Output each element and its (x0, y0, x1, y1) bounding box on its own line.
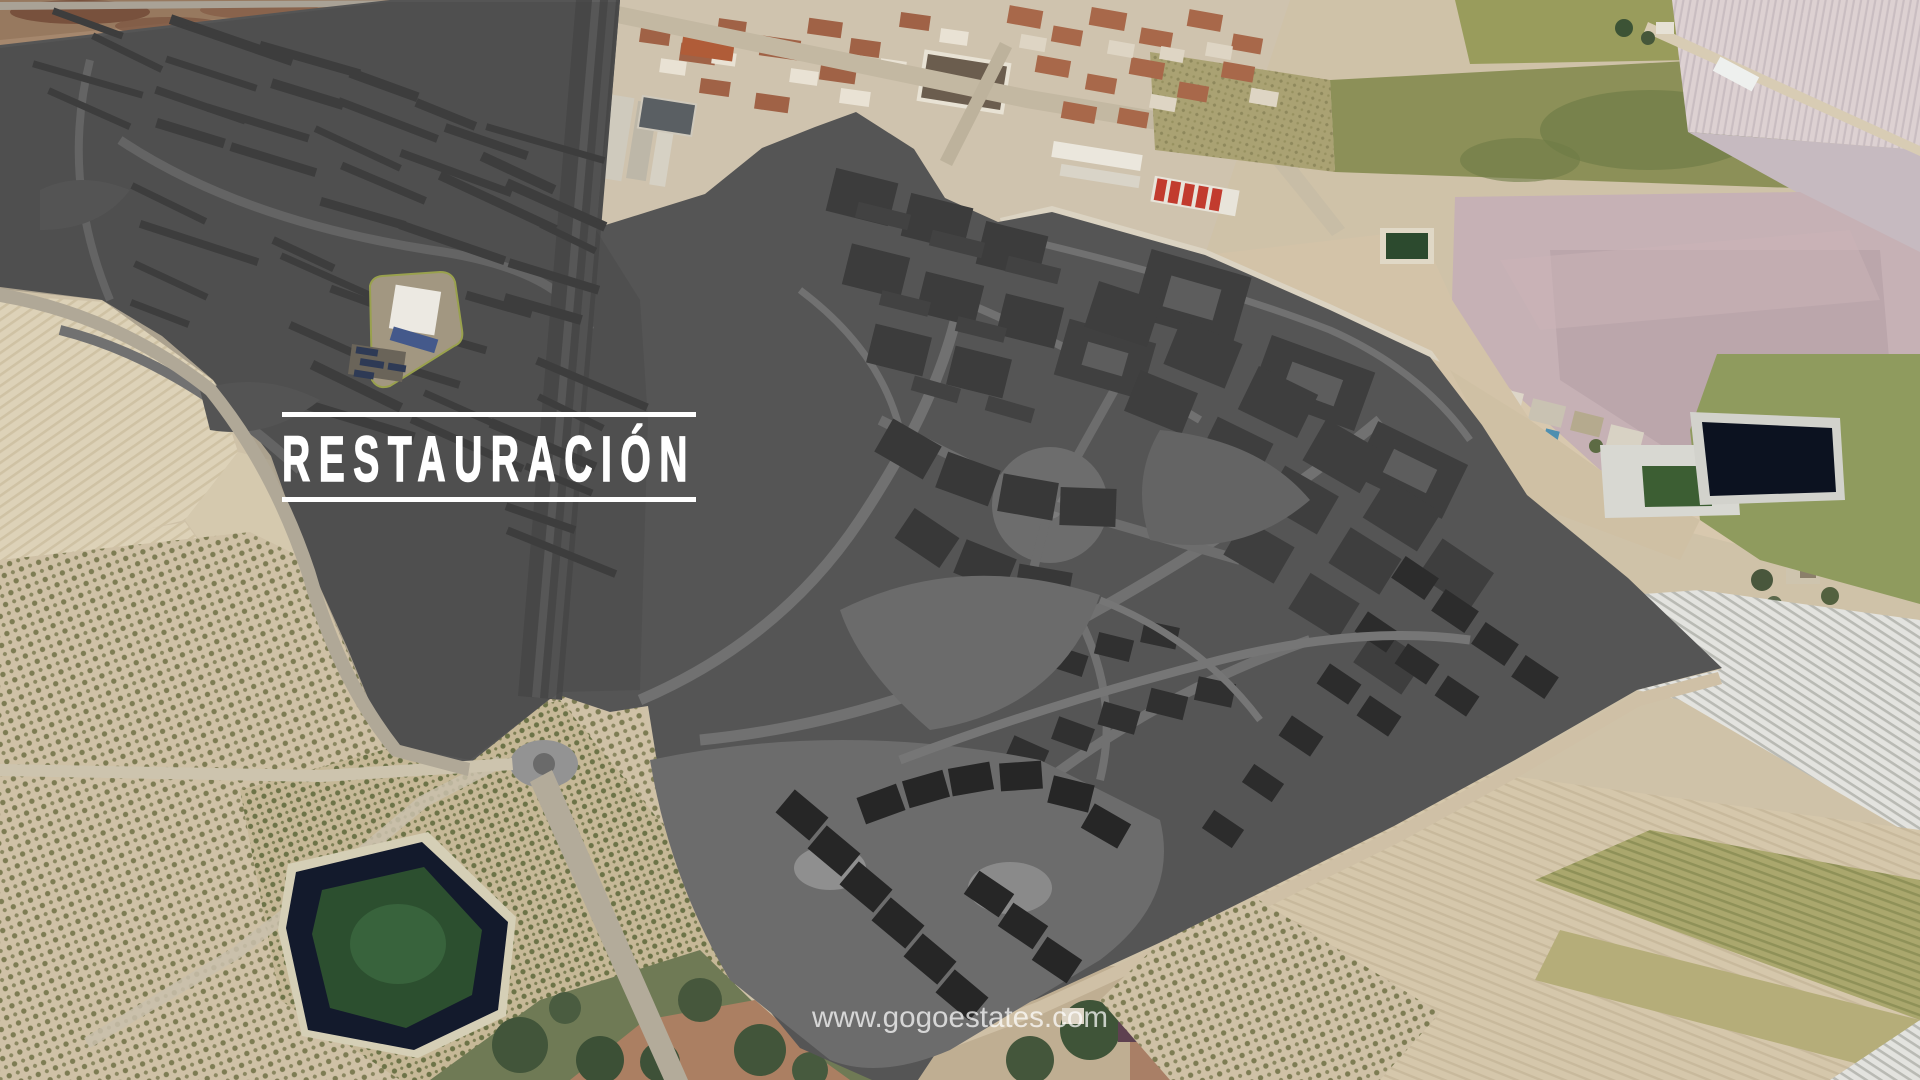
svg-text:RESTAURACIÓN: RESTAURACIÓN (282, 423, 696, 495)
svg-text:www.gogoestates.com: www.gogoestates.com (811, 1001, 1108, 1034)
